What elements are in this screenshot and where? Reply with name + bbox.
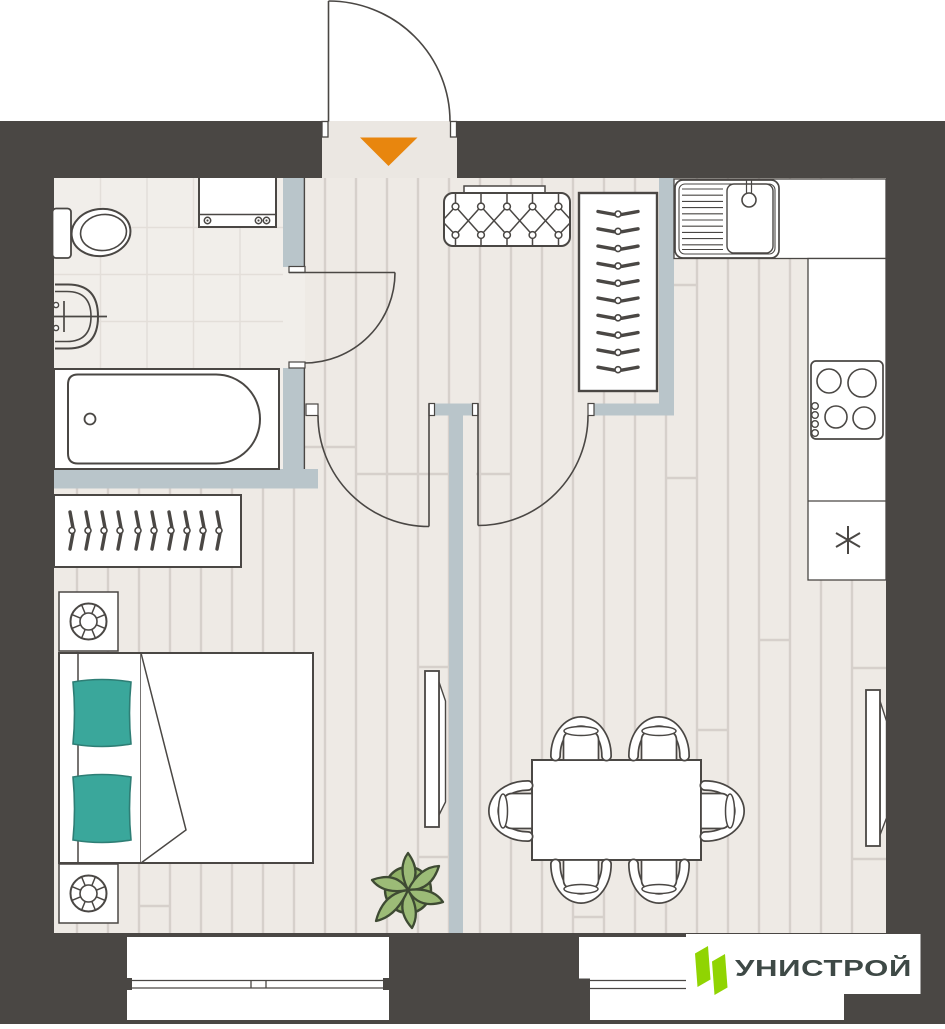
svg-text:УНИСТРОЙ: УНИСТРОЙ: [735, 954, 912, 981]
